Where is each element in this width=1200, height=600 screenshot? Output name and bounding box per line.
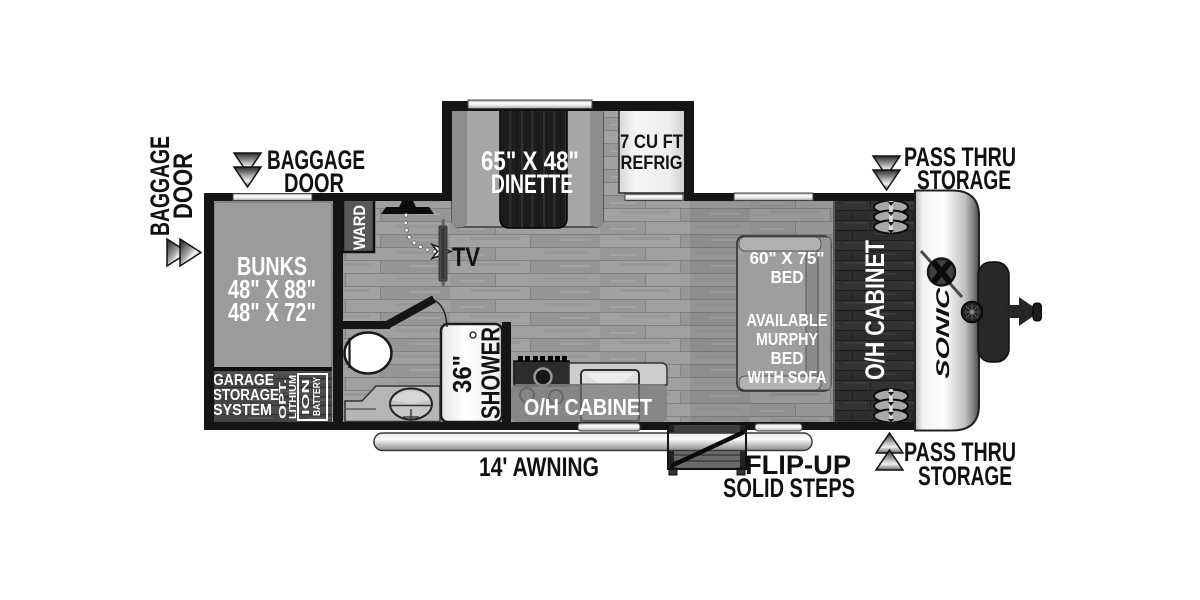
svg-text:O/H CABINET: O/H CABINET <box>860 240 890 380</box>
svg-text:SHOWER: SHOWER <box>476 327 506 419</box>
svg-text:60" X 75": 60" X 75" <box>750 248 825 268</box>
svg-text:WARD: WARD <box>350 205 369 250</box>
svg-text:REFRIG: REFRIG <box>621 153 683 174</box>
svg-text:WITH SOFA: WITH SOFA <box>748 367 827 387</box>
svg-text:O/H CABINET: O/H CABINET <box>524 394 652 420</box>
svg-text:AVAILABLE: AVAILABLE <box>747 310 828 330</box>
svg-text:STORAGE: STORAGE <box>917 165 1011 195</box>
svg-text:DOOR: DOOR <box>168 153 198 219</box>
svg-text:DINETTE: DINETTE <box>491 169 573 199</box>
svg-text:SONIC: SONIC <box>932 286 953 379</box>
svg-text:MURPHY: MURPHY <box>756 329 818 349</box>
svg-text:BED: BED <box>771 267 804 287</box>
svg-text:SOLID STEPS: SOLID STEPS <box>723 473 855 503</box>
svg-text:14' AWNING: 14' AWNING <box>479 452 599 482</box>
svg-text:SYSTEM: SYSTEM <box>213 402 272 419</box>
svg-text:48" X 72": 48" X 72" <box>228 297 316 327</box>
svg-text:BED: BED <box>771 348 804 368</box>
svg-text:TV: TV <box>452 242 480 272</box>
svg-text:BATTERY: BATTERY <box>312 377 323 416</box>
svg-text:STORAGE: STORAGE <box>918 461 1012 491</box>
svg-text:7 CU FT: 7 CU FT <box>620 132 683 153</box>
svg-text:ION: ION <box>301 379 312 415</box>
svg-text:36": 36" <box>447 355 477 393</box>
svg-text:DOOR: DOOR <box>284 168 344 198</box>
